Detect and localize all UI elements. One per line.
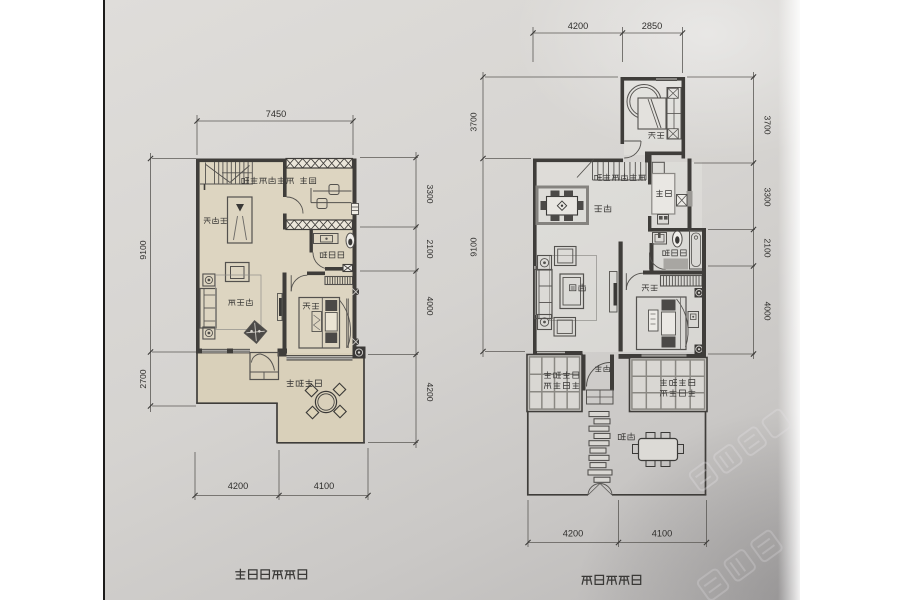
svg-text:3700: 3700 [763,115,773,134]
svg-text:4000: 4000 [763,301,773,320]
svg-text:2100: 2100 [763,238,773,257]
svg-text:4200: 4200 [425,382,435,401]
svg-text:7450: 7450 [266,109,286,119]
svg-text:9100: 9100 [469,237,479,256]
svg-text:4200: 4200 [568,21,588,31]
svg-text:2100: 2100 [425,239,435,258]
svg-text:4100: 4100 [314,481,334,491]
svg-text:9100: 9100 [138,240,148,259]
svg-text:2850: 2850 [642,21,662,31]
svg-text:4000: 4000 [425,296,435,315]
svg-text:4200: 4200 [563,529,583,539]
svg-text:2700: 2700 [138,369,148,388]
svg-text:4100: 4100 [652,529,672,539]
svg-text:3300: 3300 [763,187,773,206]
svg-text:3300: 3300 [425,184,435,203]
svg-text:4200: 4200 [228,481,248,491]
svg-text:3700: 3700 [469,112,479,131]
